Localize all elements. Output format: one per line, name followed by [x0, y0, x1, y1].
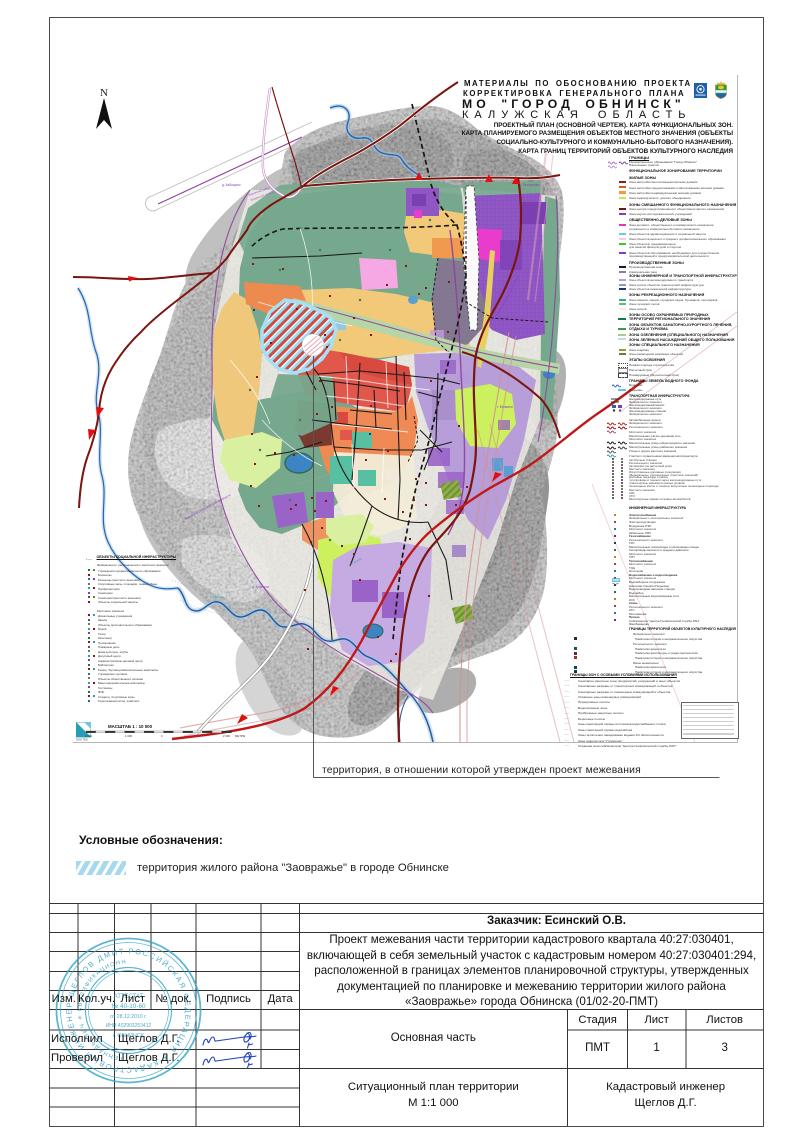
svg-text:от 28.12.2010 г.: от 28.12.2010 г. — [110, 1014, 147, 1020]
svg-text:ГЕННАДЬЕВИЧ ✳ КВАЛИФИКАЦИОННЫЙ: ГЕННАДЬЕВИЧ ✳ КВАЛИФИКАЦИОННЫЙ АТТЕСТАТ … — [0, 0, 127, 1061]
svg-text:ИНН 402903253412: ИНН 402903253412 — [106, 1023, 152, 1029]
